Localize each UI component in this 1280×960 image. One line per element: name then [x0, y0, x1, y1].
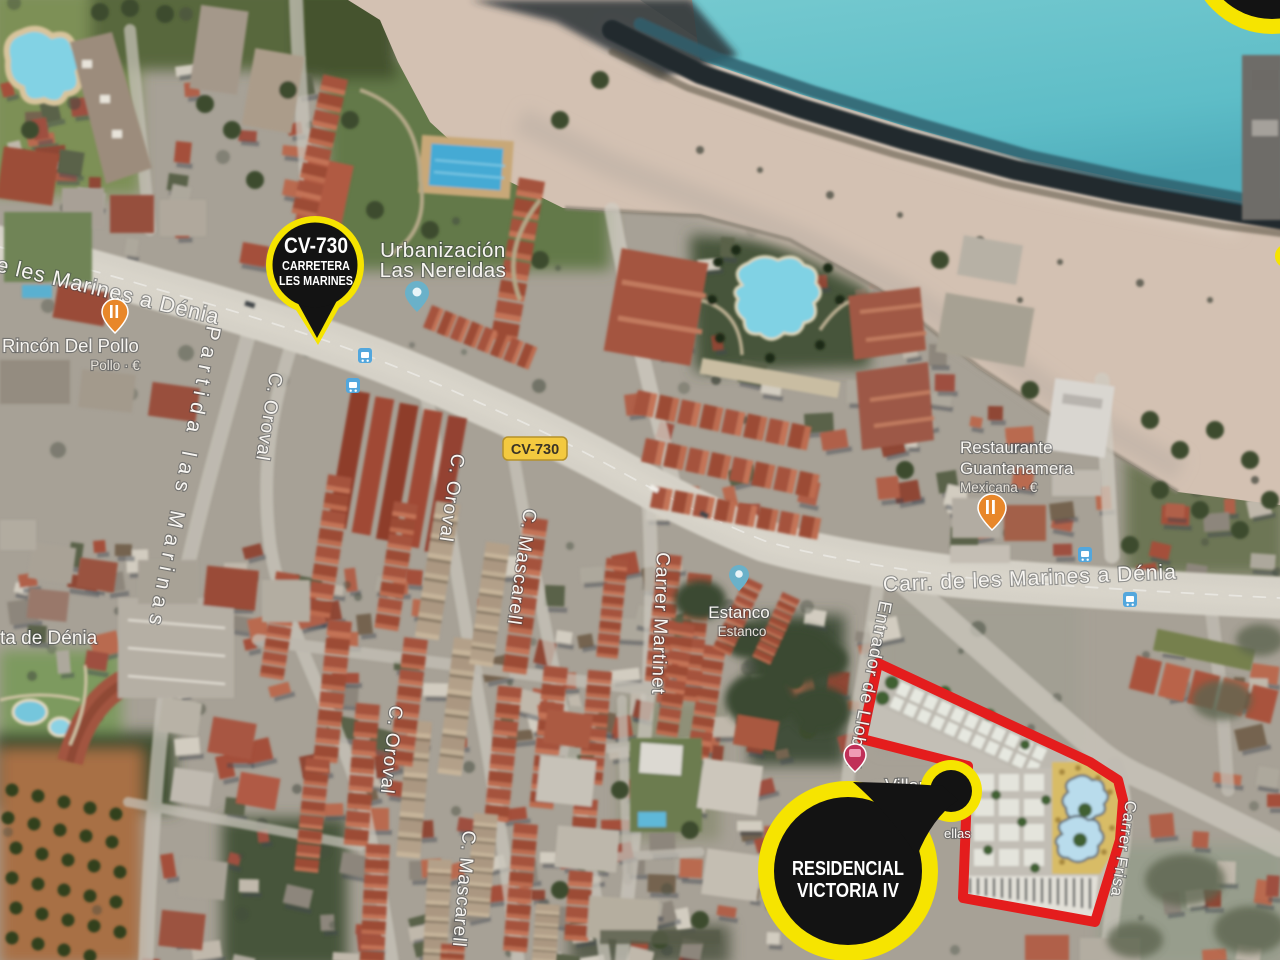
svg-text:Guantanamera: Guantanamera [960, 459, 1074, 478]
svg-text:Las Nereidas: Las Nereidas [380, 259, 507, 282]
svg-text:Rincón Del Pollo: Rincón Del Pollo [2, 335, 139, 356]
svg-text:Pollo · €: Pollo · € [90, 358, 140, 373]
svg-text:ta de Dénia: ta de Dénia [0, 628, 98, 649]
svg-text:CV-730: CV-730 [511, 442, 559, 458]
svg-text:Estanco: Estanco [718, 624, 767, 639]
svg-text:LES MARINES: LES MARINES [279, 274, 353, 288]
svg-text:RESIDENCIAL: RESIDENCIAL [792, 858, 904, 880]
svg-text:CV-730: CV-730 [284, 233, 348, 258]
svg-text:ellas: ellas [944, 826, 971, 841]
svg-text:Mexicana · €: Mexicana · € [960, 480, 1038, 495]
svg-text:CARRETERA: CARRETERA [282, 259, 350, 273]
svg-text:VICTORIA IV: VICTORIA IV [797, 880, 900, 902]
svg-text:Estanco: Estanco [708, 603, 769, 622]
svg-text:Restaurante: Restaurante [960, 438, 1053, 457]
